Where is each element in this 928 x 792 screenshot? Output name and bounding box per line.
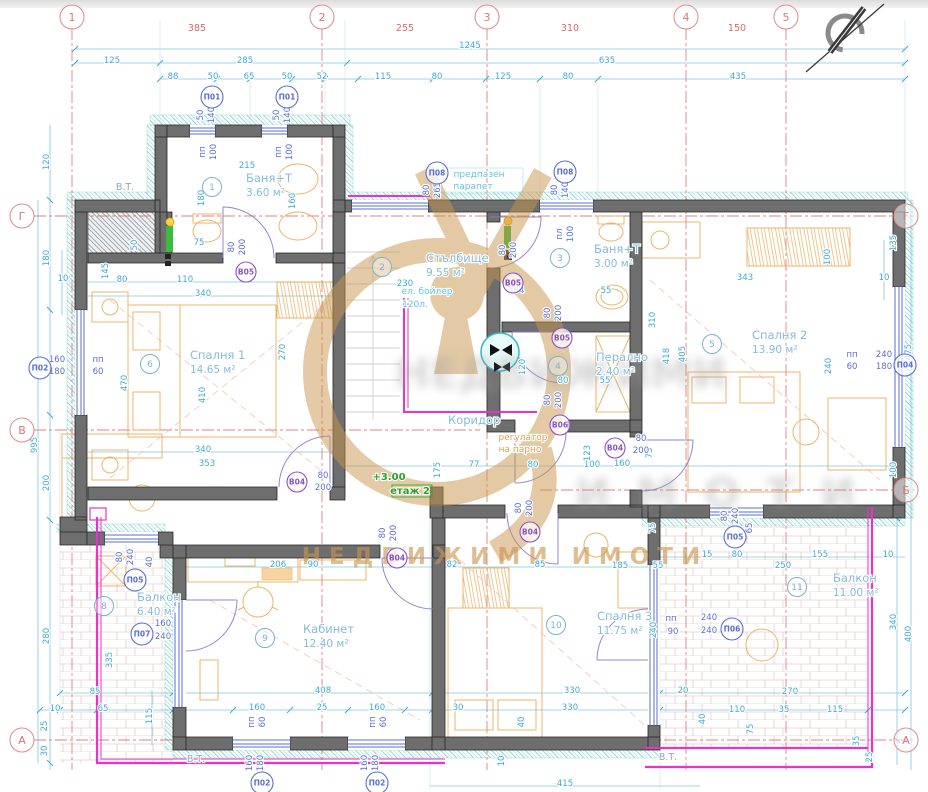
watermark-brand-text: НЕДВИЖИМИ ИМОТИ bbox=[302, 544, 708, 570]
dimension-label: 40 bbox=[145, 557, 155, 568]
dimension-label: 115 bbox=[827, 705, 843, 715]
axis-label: Б bbox=[902, 484, 910, 497]
dimension-label: 200 bbox=[315, 483, 331, 493]
dimension-label: 215 bbox=[239, 161, 255, 171]
dimension-label: 160 bbox=[369, 703, 385, 713]
dimension-label: 80 bbox=[115, 552, 125, 563]
dimension-label: 40 bbox=[698, 714, 708, 725]
dimension-label: пп bbox=[92, 355, 103, 365]
room-number: 8 bbox=[101, 602, 107, 612]
axis-label: А bbox=[18, 734, 26, 747]
dimension-label: 10 bbox=[883, 550, 894, 560]
dimension-label: 140 bbox=[207, 107, 217, 123]
dimension-label: 145 bbox=[101, 263, 111, 279]
dimension-label: 85 bbox=[90, 687, 101, 697]
window-tag: П04 bbox=[897, 361, 914, 370]
dimension-label: 10 bbox=[50, 704, 61, 714]
room-area: 11.00 м² bbox=[833, 587, 879, 599]
room-area: 13.90 м² bbox=[752, 344, 798, 356]
dimension-label: 200 bbox=[525, 500, 535, 516]
dimension-label: 340 bbox=[195, 289, 211, 299]
dimension-label: 200 bbox=[42, 475, 52, 491]
window-tag: П07 bbox=[134, 630, 151, 639]
dimension-label: 340 bbox=[889, 614, 899, 630]
dimension-label: 123 bbox=[583, 445, 593, 461]
dimension-label: 180 bbox=[876, 362, 892, 372]
dimension-label: 180 bbox=[256, 755, 266, 771]
room-name: Баня+Т bbox=[246, 171, 293, 185]
dimension-label: 405 bbox=[678, 346, 688, 362]
door-tag: В04 bbox=[607, 444, 623, 453]
dimension-label: 200 bbox=[389, 525, 399, 541]
dimension-label: 270 bbox=[782, 687, 798, 697]
dimension-label: 250 bbox=[775, 561, 791, 571]
dimension-label: пп bbox=[198, 146, 208, 157]
door-tag: В05 bbox=[554, 334, 570, 343]
dimension-label: 80 bbox=[732, 550, 743, 560]
room-number: 4 bbox=[555, 362, 561, 372]
dimension-label: 80 bbox=[543, 395, 553, 406]
room-area: 3.60 м² bbox=[246, 187, 285, 199]
note-text: предпазен bbox=[454, 170, 505, 180]
dimension-label: 30 bbox=[40, 746, 50, 757]
dimension-label: 120 bbox=[42, 154, 52, 170]
door-tag: В04 bbox=[289, 478, 305, 487]
room-number: 11 bbox=[791, 583, 802, 593]
note-text: В.Т. bbox=[659, 752, 677, 763]
note-text: регулатор bbox=[498, 433, 547, 443]
room-area: 6.40 м² bbox=[137, 606, 176, 618]
note-text: В.Т. bbox=[116, 182, 134, 193]
dimension-label: 65 bbox=[98, 704, 109, 714]
dimension-label: 100 bbox=[889, 462, 899, 478]
dimension-label: 10 bbox=[58, 274, 69, 284]
window-tag: П01 bbox=[279, 93, 296, 102]
dimension-label: 160 bbox=[614, 459, 630, 469]
dimension-label: пп bbox=[665, 614, 676, 624]
dimension-label: 240 bbox=[701, 626, 717, 636]
dimension-label: 60 bbox=[93, 367, 104, 377]
dimension-label: 160 bbox=[360, 755, 370, 771]
dimension-label: пп bbox=[247, 716, 257, 727]
dimension-label: 240 bbox=[126, 549, 136, 565]
dimension-label: 77 bbox=[469, 460, 480, 470]
dimension-label: 435 bbox=[730, 72, 746, 82]
dimension-label: 408 bbox=[315, 686, 331, 696]
room-name: Кабинет bbox=[303, 622, 354, 636]
compass-icon bbox=[806, 4, 884, 72]
dimension-label: 175 bbox=[433, 462, 443, 478]
window-tag: П02 bbox=[369, 779, 386, 788]
room-area: 3.00 м² bbox=[594, 258, 633, 270]
dimension-label: 80 bbox=[422, 185, 432, 196]
room-name: Спалня 3 bbox=[597, 609, 652, 623]
room-number: 6 bbox=[147, 360, 153, 370]
window-tag: П08 bbox=[557, 168, 574, 177]
axis-label: 5 bbox=[783, 11, 790, 24]
dimension-label: 75 bbox=[746, 724, 756, 735]
dimension-label: 185 bbox=[612, 561, 628, 571]
room-name: Перално bbox=[596, 350, 648, 364]
note-text: 120л. bbox=[402, 300, 428, 310]
dimension-label: 80 bbox=[378, 528, 388, 539]
axis-label: 3 bbox=[484, 11, 491, 24]
dimension-label: 335 bbox=[105, 652, 115, 668]
dimension-label: 343 bbox=[737, 273, 753, 283]
dimension-label: 60 bbox=[379, 717, 389, 728]
dimension-label: 65 bbox=[244, 72, 255, 82]
room-name: Коридор bbox=[448, 413, 500, 427]
note-text: +3.00 bbox=[372, 472, 405, 483]
dimension-label: 25 bbox=[317, 703, 328, 713]
room-area: 9.55 м² bbox=[426, 267, 465, 279]
dimension-label: 330 bbox=[562, 703, 578, 713]
dimension-label: 65 bbox=[745, 523, 755, 534]
door-tag: В04 bbox=[389, 554, 405, 563]
axis-label: В bbox=[18, 424, 26, 437]
dimension-label: 80 bbox=[558, 376, 569, 386]
dimension-label: 25 bbox=[40, 721, 50, 732]
room-number: 3 bbox=[557, 254, 563, 264]
dimension-label: 200 bbox=[509, 242, 519, 258]
dimension-label: 206 bbox=[270, 560, 286, 570]
window-tag: П05 bbox=[727, 533, 744, 542]
dimension-label: 80 bbox=[563, 72, 574, 82]
door-tag: В04 bbox=[522, 528, 538, 537]
dimension-label: 180 bbox=[371, 755, 381, 771]
dimension-label: 40 bbox=[517, 717, 527, 728]
dimension-label: 160 bbox=[249, 703, 265, 713]
dimension-label: 80 bbox=[528, 460, 539, 470]
dimension-label: 150 bbox=[728, 23, 746, 34]
dimension-label: 160 bbox=[288, 193, 298, 209]
note-text: В.Т. bbox=[187, 754, 205, 765]
dimension-label: 80 bbox=[117, 275, 128, 285]
dimension-label: 115 bbox=[375, 72, 391, 82]
dimension-label: 30 bbox=[453, 703, 464, 713]
dimension-label: 330 bbox=[564, 686, 580, 696]
dimension-label: 160 bbox=[49, 355, 65, 365]
dimension-label: пп bbox=[368, 716, 378, 727]
dimension-label: 255 bbox=[396, 23, 414, 34]
dimension-label: 110 bbox=[177, 275, 193, 285]
window-tag: П05 bbox=[127, 576, 144, 585]
floor-plan-page: НЕДВИЖИМИ ИМОТИ НЕДВИЖИМИ ИМОТИ 38525531… bbox=[0, 0, 928, 792]
door-tag: В05 bbox=[238, 268, 254, 277]
dimension-label: 100 bbox=[285, 144, 295, 160]
room-name: Стълбище bbox=[426, 251, 489, 265]
floor-plan-canvas: НЕДВИЖИМИ ИМОТИ НЕДВИЖИМИ ИМОТИ 38525531… bbox=[0, 0, 928, 792]
window-tag: П02 bbox=[254, 779, 271, 788]
axis-label: 1 bbox=[69, 11, 76, 24]
axis-label: 4 bbox=[683, 11, 690, 24]
note-text: парапет bbox=[453, 182, 492, 192]
dimension-label: 90 bbox=[308, 560, 319, 570]
dimension-label: 155 bbox=[812, 550, 828, 560]
dimension-label: 200 bbox=[554, 392, 564, 408]
dimension-label: 280 bbox=[42, 628, 52, 644]
dimension-label: 140 bbox=[283, 107, 293, 123]
dimension-label: 200 bbox=[554, 305, 564, 321]
dimension-label: 82 bbox=[447, 560, 458, 570]
dimension-label: 80 bbox=[720, 511, 730, 522]
room-name: Спалня 2 bbox=[752, 328, 807, 342]
dimension-label: 88 bbox=[168, 72, 179, 82]
dimension-label: 470 bbox=[120, 375, 130, 391]
room-number: 2 bbox=[379, 263, 385, 273]
dimension-label: 160 bbox=[155, 619, 171, 629]
dimension-label: 60 bbox=[847, 362, 858, 372]
dimension-label: 240 bbox=[649, 622, 659, 638]
room-area: 14.65 м² bbox=[190, 364, 236, 376]
dimension-label: пп bbox=[274, 146, 284, 157]
dimension-label: 35 bbox=[852, 736, 862, 747]
dimension-label: 100 bbox=[566, 226, 576, 242]
dimension-label: 995 bbox=[30, 437, 40, 453]
dimension-label: 310 bbox=[561, 23, 579, 34]
room-area: 12.40 м² bbox=[303, 638, 349, 650]
dimension-label: 180 bbox=[42, 250, 52, 266]
dimension-label: 10 bbox=[879, 273, 890, 283]
window-tag: П06 bbox=[724, 625, 741, 634]
dimension-label: 310 bbox=[648, 312, 658, 328]
window-tag: П08 bbox=[429, 169, 446, 178]
axis-label: Г bbox=[19, 210, 26, 223]
dimension-label: 50 bbox=[282, 72, 293, 82]
dimension-label: 100 bbox=[209, 144, 219, 160]
door-tag: В06 bbox=[552, 421, 568, 430]
room-name: Баня+Т bbox=[594, 242, 641, 256]
dimension-label: 25 bbox=[865, 752, 875, 763]
note-text: на парно bbox=[499, 445, 542, 455]
dimension-label: 635 bbox=[599, 56, 615, 66]
dimension-label: 110 bbox=[729, 705, 745, 715]
room-number: 1 bbox=[209, 183, 215, 193]
door-tag: В05 bbox=[505, 279, 521, 288]
dimension-label: 385 bbox=[188, 23, 206, 34]
note-text: ел. бойлер bbox=[402, 287, 453, 297]
dimension-label: 50 bbox=[130, 240, 140, 251]
dimension-label: 200 bbox=[238, 239, 248, 255]
dimension-label: 80 bbox=[636, 434, 647, 444]
dimension-label: 100 bbox=[823, 249, 833, 265]
room-name: Балкон bbox=[833, 571, 877, 585]
dimension-label: 80 bbox=[432, 72, 443, 82]
dimension-label: 340 bbox=[195, 445, 211, 455]
dimension-label: 400 bbox=[904, 626, 914, 642]
dimension-label: 60 bbox=[258, 717, 268, 728]
dimension-label: 10 bbox=[497, 756, 507, 767]
room-number: 9 bbox=[262, 634, 268, 644]
dimension-label: 125 bbox=[495, 72, 511, 82]
room-area: 11.75 м² bbox=[597, 625, 643, 637]
dimension-label: 125 bbox=[104, 56, 120, 66]
room-number: 10 bbox=[550, 621, 562, 631]
dimension-label: 80 bbox=[498, 245, 508, 256]
dimension-label: 75 bbox=[648, 523, 658, 534]
dimension-label: 353 bbox=[199, 459, 215, 469]
dimension-label: 240 bbox=[824, 358, 834, 374]
dimension-label: 415 bbox=[557, 779, 573, 789]
dimension-label: 50 bbox=[208, 72, 219, 82]
dimension-label: 75 bbox=[194, 238, 205, 248]
dimension-label: 80 bbox=[514, 503, 524, 514]
dimension-label: 90 bbox=[668, 627, 679, 637]
dimension-label: 50 bbox=[272, 110, 282, 121]
dimension-label: 80 bbox=[318, 471, 329, 481]
dimension-label: 50 bbox=[196, 110, 206, 121]
dimension-label: 80 bbox=[227, 242, 237, 253]
dimension-label: 240 bbox=[731, 508, 741, 524]
dimension-label: 240 bbox=[876, 350, 892, 360]
dimension-label: 418 bbox=[662, 348, 672, 364]
dimension-label: 270 bbox=[278, 344, 288, 360]
dimension-label: 85 bbox=[535, 560, 546, 570]
window-tag: П02 bbox=[32, 364, 49, 373]
axis-label: 2 bbox=[319, 11, 326, 24]
dimension-label: 55 bbox=[653, 561, 664, 571]
dimension-label: 200 bbox=[633, 446, 649, 456]
room-number: 5 bbox=[709, 340, 715, 350]
dimension-label: 410 bbox=[198, 387, 208, 403]
axis-label: Г bbox=[903, 210, 910, 223]
dimension-label: 35 bbox=[779, 705, 790, 715]
dimension-label: 135 bbox=[889, 235, 899, 251]
dimension-label: 240 bbox=[155, 632, 171, 642]
dimension-label: пл bbox=[555, 229, 565, 240]
dimension-label: 80 bbox=[550, 185, 560, 196]
dimension-label: 52 bbox=[317, 72, 328, 82]
dimension-label: пп bbox=[846, 350, 857, 360]
dimension-label: 115 bbox=[145, 708, 155, 724]
dimension-label: 240 bbox=[701, 613, 717, 623]
axis-label: А bbox=[902, 734, 910, 747]
dimension-label: 120 bbox=[518, 359, 528, 375]
dimension-label: 20 bbox=[678, 686, 689, 696]
dimension-label: 15 bbox=[702, 550, 713, 560]
dimension-label: 55 bbox=[601, 286, 612, 296]
vt-shaft bbox=[88, 212, 160, 253]
room-name: Балкон bbox=[137, 590, 181, 604]
dimension-label: 285 bbox=[237, 56, 253, 66]
room-name: Спалня 1 bbox=[190, 348, 245, 362]
window-tag: П01 bbox=[204, 93, 221, 102]
room-area: 2.40 м² bbox=[596, 366, 635, 378]
dimension-label: 140 bbox=[561, 182, 571, 198]
dimension-label: 1245 bbox=[459, 41, 481, 51]
dimension-label: 80 bbox=[543, 308, 553, 319]
note-text: етаж 2 bbox=[390, 486, 430, 497]
dimension-label: 160 bbox=[245, 755, 255, 771]
